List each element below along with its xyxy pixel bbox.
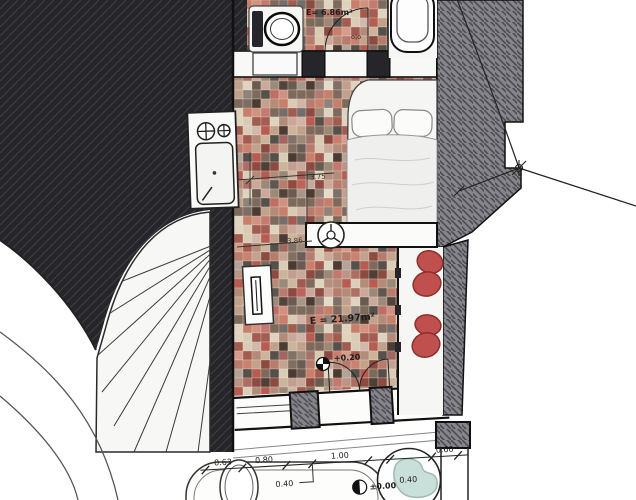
pillar-divider-right bbox=[367, 51, 390, 77]
duvet bbox=[347, 135, 437, 230]
dark-wall-top bbox=[0, 0, 247, 63]
door-mark-label: o|o bbox=[351, 33, 361, 41]
pillar-bottom-right bbox=[370, 387, 394, 424]
bath-area-label: E= 6.86m² bbox=[306, 8, 353, 17]
balcony-strip bbox=[395, 247, 446, 415]
wall-cabinet bbox=[253, 53, 297, 75]
shelf-beam bbox=[306, 222, 437, 248]
room-level-label: +0.20 bbox=[334, 353, 361, 363]
terrace-level-label: ±0.00 bbox=[369, 481, 396, 492]
radiator bbox=[243, 265, 274, 324]
toilet-tank bbox=[252, 11, 263, 47]
offset-dim-1: 0.40 bbox=[399, 475, 417, 485]
offset-dim-0: 0.40 bbox=[275, 479, 293, 489]
chain-dim-0: 0.63 bbox=[214, 457, 232, 467]
bed bbox=[347, 80, 437, 232]
chain-dim-2: 1.00 bbox=[331, 451, 349, 461]
kitchen bbox=[187, 111, 238, 209]
dim-label-lower: 3.86 bbox=[287, 236, 304, 245]
pillar-divider-left bbox=[302, 51, 325, 77]
floor-plan-canvas: 3.75 3.86 E= 6.86m² o|o E = 21.97m² +0.2… bbox=[0, 0, 636, 500]
pillar-bottom-left bbox=[290, 391, 320, 429]
dim-label-upper: 3.75 bbox=[310, 172, 326, 181]
pillow-left bbox=[351, 109, 392, 137]
pillow-right bbox=[394, 109, 433, 136]
floor-plan-drawing: 3.75 3.86 E= 6.86m² o|o E = 21.97m² +0.2… bbox=[0, 0, 636, 500]
chain-dim-3: 0.60 bbox=[436, 445, 454, 455]
chain-dim-1: 0.80 bbox=[255, 455, 273, 465]
